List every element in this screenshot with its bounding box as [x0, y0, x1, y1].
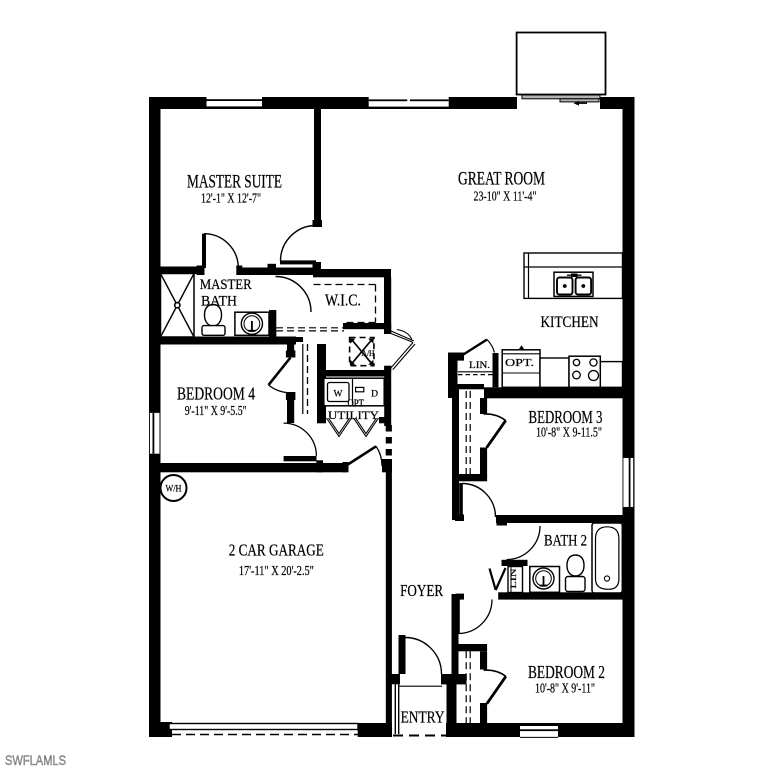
svg-text:ENTRY: ENTRY	[401, 708, 445, 727]
svg-text:KITCHEN: KITCHEN	[541, 314, 599, 331]
svg-text:SWFLAMLS: SWFLAMLS	[5, 753, 66, 768]
svg-text:10'-8" X 9-11.5": 10'-8" X 9-11.5"	[536, 425, 602, 440]
svg-text:GREAT ROOM: GREAT ROOM	[458, 170, 545, 190]
svg-text:A/H: A/H	[362, 348, 375, 358]
svg-text:12'-1" X 12'-7": 12'-1" X 12'-7"	[201, 191, 261, 206]
svg-text:D: D	[371, 390, 378, 400]
svg-text:2 CAR GARAGE: 2 CAR GARAGE	[229, 541, 324, 560]
svg-text:LIN: LIN	[508, 569, 518, 589]
svg-text:LIN.: LIN.	[469, 360, 490, 370]
svg-text:9'-11" X 9'-5.5": 9'-11" X 9'-5.5"	[185, 403, 247, 418]
svg-text:W: W	[334, 390, 343, 400]
svg-text:17'-11" X 20'-2.5": 17'-11" X 20'-2.5"	[239, 563, 314, 578]
svg-text:MASTER: MASTER	[200, 277, 252, 293]
svg-text:BEDROOM 2: BEDROOM 2	[528, 662, 605, 682]
svg-text:BEDROOM 4: BEDROOM 4	[177, 384, 255, 404]
svg-text:W.I.C.: W.I.C.	[325, 291, 361, 310]
svg-text:UTILITY: UTILITY	[328, 408, 379, 422]
svg-text:BATH 2: BATH 2	[544, 533, 587, 550]
svg-text:23-10" X 11'-4": 23-10" X 11'-4"	[474, 189, 537, 204]
svg-text:FOYER: FOYER	[400, 581, 444, 600]
svg-text:W/H: W/H	[166, 485, 182, 495]
svg-text:BATH: BATH	[201, 294, 237, 310]
svg-text:OPT.: OPT.	[505, 357, 534, 369]
svg-text:MASTER SUITE: MASTER SUITE	[187, 173, 282, 193]
svg-text:10'-8" X 9'-11": 10'-8" X 9'-11"	[535, 681, 595, 696]
